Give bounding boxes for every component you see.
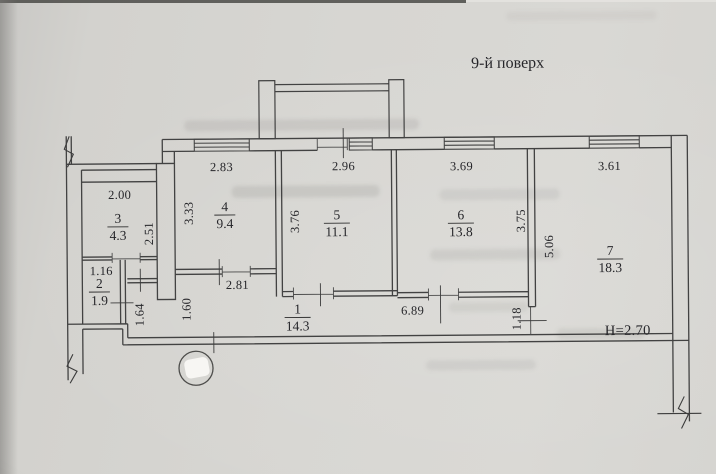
room-area: 18.3 [598, 260, 622, 275]
balcony-railing [275, 84, 389, 92]
dimension-label: 3.61 [598, 159, 621, 173]
dimension-label: 6.89 [401, 303, 424, 317]
dimension-label: 3.33 [182, 202, 196, 225]
room-area: 11.1 [325, 224, 348, 239]
room-label: 21.9 [89, 276, 110, 308]
ghost-bleed-marks [183, 11, 659, 373]
room-area: 14.3 [286, 318, 310, 333]
room-labels: 114.321.934.349.4511.1613.8718.3 [88, 196, 624, 335]
floorplan-drawing: 9-й поверх 2.832.963.693.612.003.332.513… [0, 0, 716, 474]
walls [66, 131, 689, 426]
room-number: 7 [607, 243, 614, 258]
dimension-label: Н=2.70 [605, 323, 651, 339]
room-number: 6 [457, 207, 464, 222]
room-label: 114.3 [285, 301, 311, 333]
window-symbol [589, 136, 639, 148]
dimension-label: 2.83 [210, 160, 233, 174]
room4-door-opening [222, 266, 250, 277]
room-number: 2 [96, 276, 103, 291]
dimension-label: 2.51 [142, 222, 156, 245]
dimension-labels: 2.832.963.693.612.003.332.513.763.755.06… [89, 157, 651, 343]
window-symbol [194, 139, 249, 151]
room-area: 9.4 [216, 216, 233, 231]
dimension-label: 1.60 [179, 298, 193, 321]
room-area: 13.8 [449, 224, 473, 239]
window-symbol [444, 137, 494, 149]
room-number: 1 [294, 301, 301, 316]
window-symbol [349, 138, 372, 150]
dimension-label: 3.69 [450, 159, 473, 173]
floor-title: 9-й поверх [471, 55, 544, 73]
room-number: 3 [114, 211, 121, 226]
room-number: 5 [333, 207, 340, 222]
floorplan-photo: 9-й поверх 2.832.963.693.612.003.332.513… [0, 0, 716, 474]
dimension-label: 2.81 [226, 278, 249, 292]
wall-break-marks [64, 131, 701, 433]
room-label: 718.3 [597, 243, 623, 275]
room-label: 49.4 [214, 199, 235, 231]
room-area: 1.9 [91, 293, 108, 308]
room-label: 34.3 [107, 211, 128, 243]
dimension-label: 3.75 [514, 209, 528, 232]
dimension-label: 2.96 [332, 159, 355, 173]
room-label: 613.8 [448, 207, 474, 239]
dimension-label: 5.06 [542, 235, 556, 258]
room6-door-opening [428, 288, 458, 300]
room-area: 4.3 [109, 228, 126, 243]
room5-door-opening [293, 287, 333, 299]
dimension-label: 1.18 [510, 307, 524, 330]
room-label: 511.1 [324, 207, 350, 239]
stamp-circle [179, 351, 213, 385]
dimension-label: 2.00 [108, 188, 131, 202]
dimension-label: 3.76 [288, 210, 302, 233]
room-number: 4 [221, 199, 228, 214]
dimension-label: 1.64 [133, 303, 147, 327]
room3-door-opening [112, 253, 140, 263]
